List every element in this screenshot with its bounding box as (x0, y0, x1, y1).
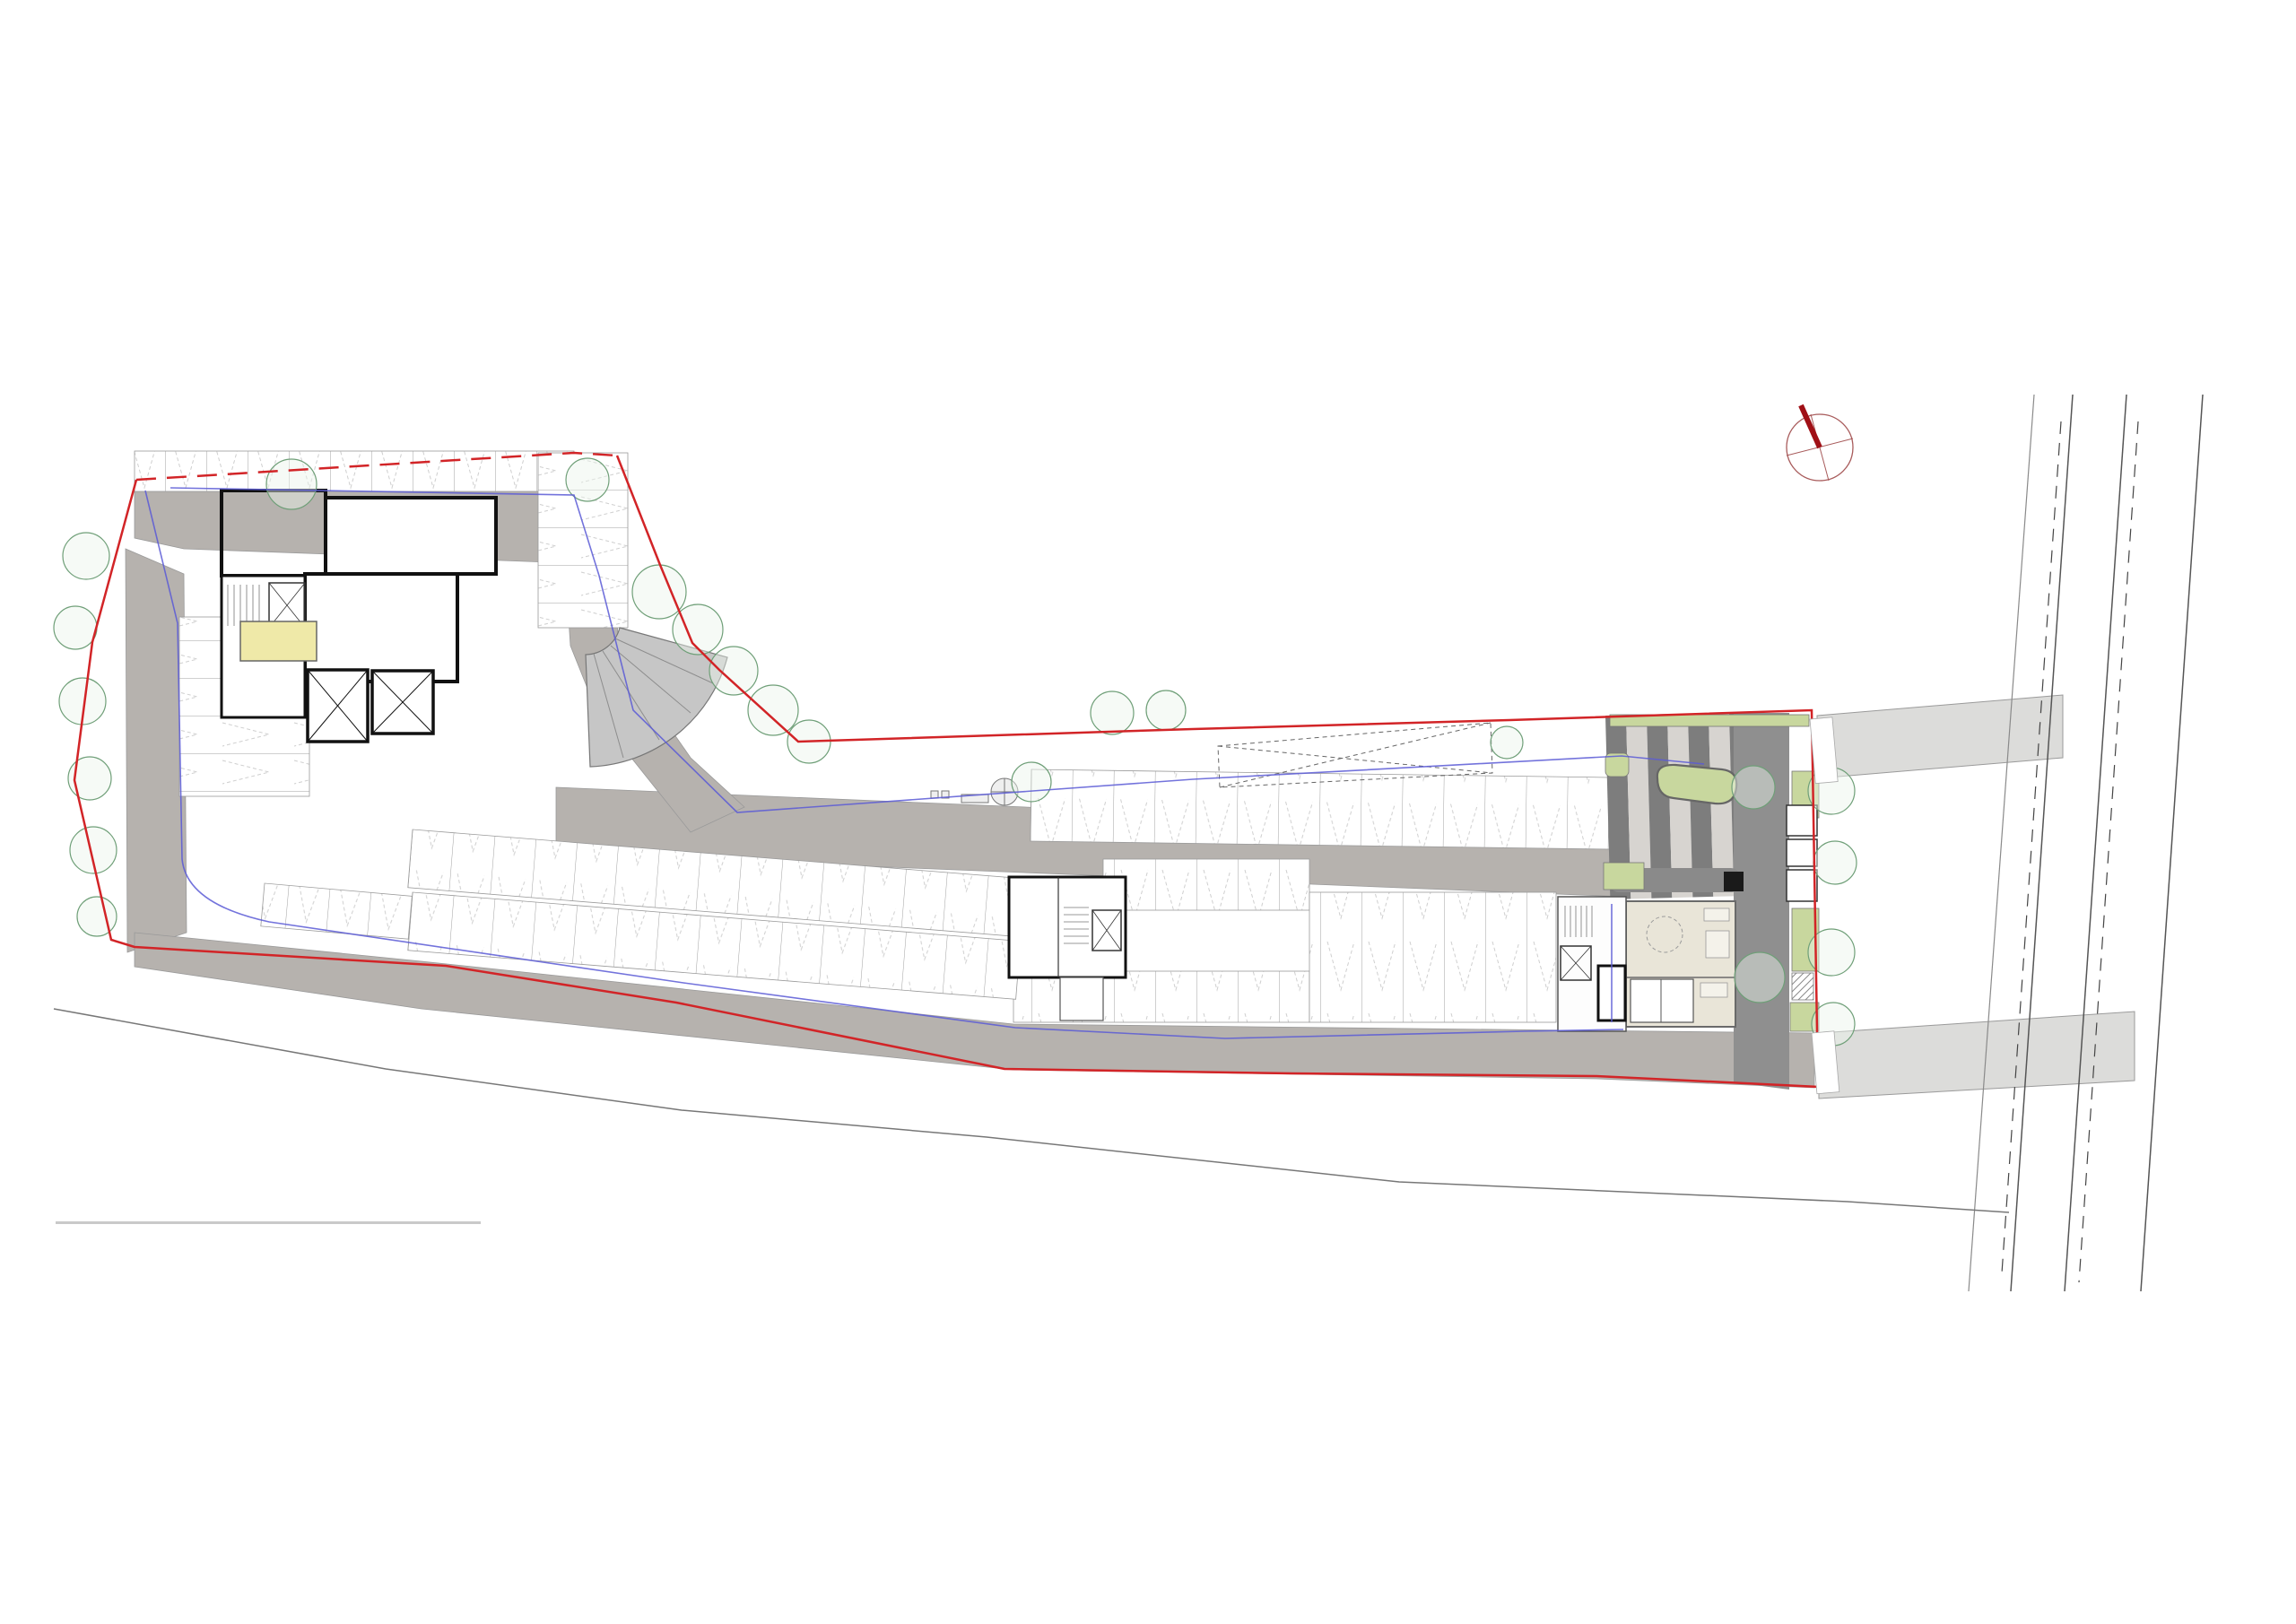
playground (931, 778, 1018, 805)
title-underline (56, 1221, 481, 1224)
ecr-road-lines (1969, 395, 2203, 1291)
gate-connector-roads (1817, 695, 2135, 1099)
meter-panel-hatch (1792, 973, 1813, 1000)
north-compass (1787, 405, 1853, 481)
sheet (0, 0, 2296, 1624)
utility-room (240, 621, 317, 661)
clubhouse-building (1558, 897, 1735, 1031)
site-plan-drawing (0, 0, 2296, 1624)
